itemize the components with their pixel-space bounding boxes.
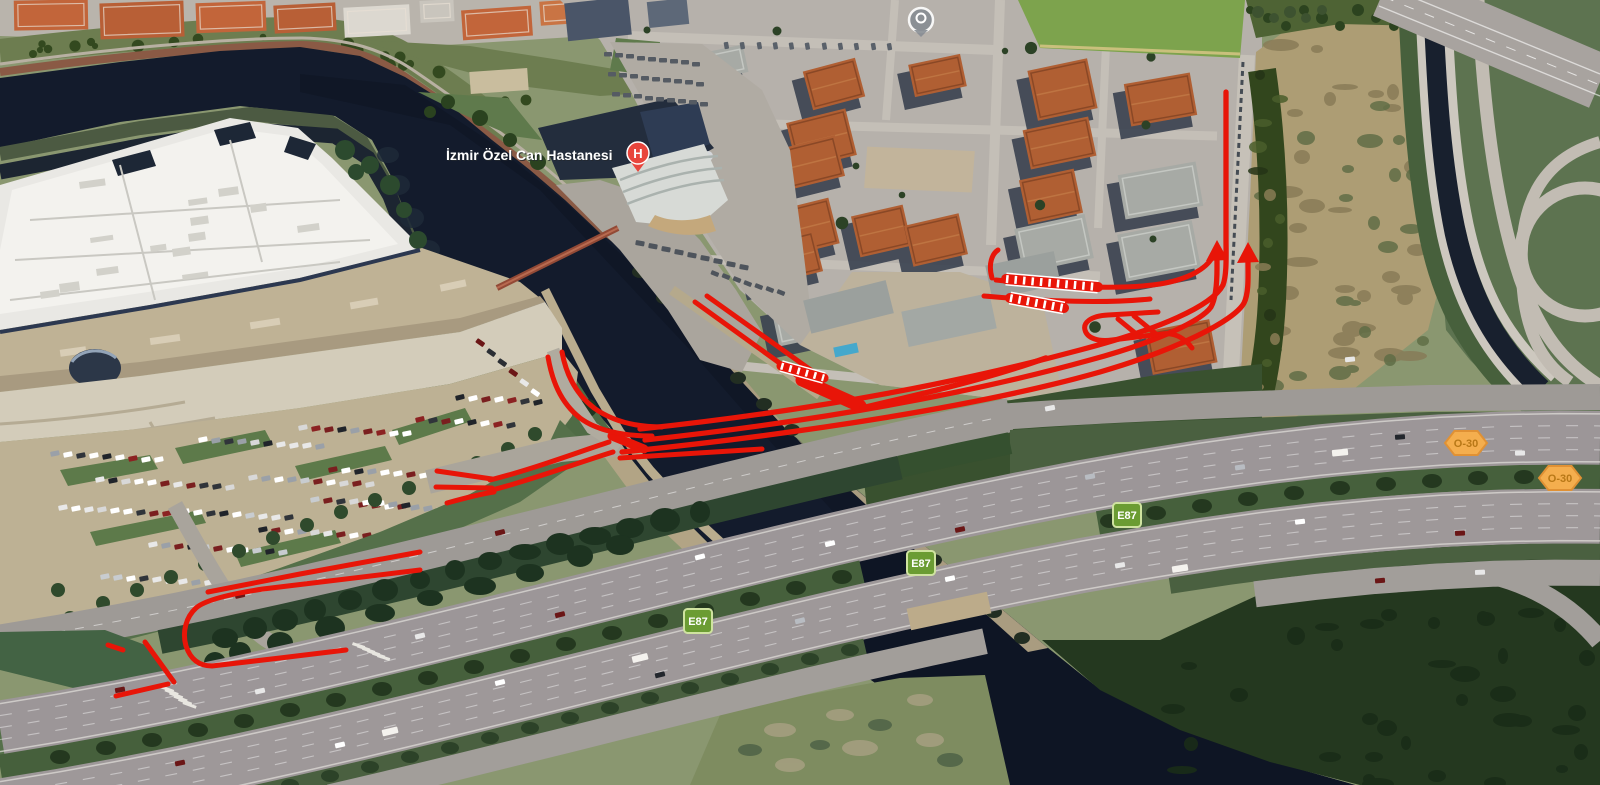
svg-text:H: H (633, 146, 642, 161)
svg-text:İzmir Özel Can Hastanesi: İzmir Özel Can Hastanesi (446, 147, 613, 163)
svg-text:O-30: O-30 (1454, 438, 1478, 450)
svg-text:E87: E87 (1117, 510, 1137, 522)
svg-text:E87: E87 (911, 558, 931, 570)
svg-text:O-30: O-30 (1548, 473, 1572, 485)
svg-text:E87: E87 (688, 616, 708, 628)
